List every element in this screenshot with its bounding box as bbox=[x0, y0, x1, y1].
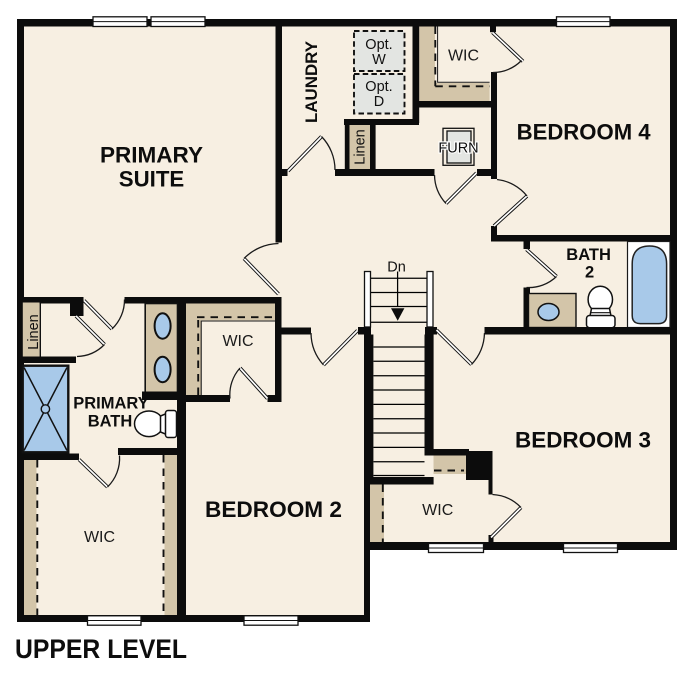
svg-text:BATH: BATH bbox=[88, 413, 133, 431]
svg-text:WIC: WIC bbox=[422, 502, 453, 519]
svg-text:FURN: FURN bbox=[438, 140, 478, 156]
svg-text:W: W bbox=[372, 52, 386, 68]
svg-text:Opt.: Opt. bbox=[365, 79, 392, 95]
svg-text:SUITE: SUITE bbox=[119, 167, 185, 192]
svg-text:Opt.: Opt. bbox=[365, 37, 392, 53]
svg-text:BEDROOM 4: BEDROOM 4 bbox=[517, 120, 651, 145]
svg-text:PRIMARY: PRIMARY bbox=[100, 143, 203, 168]
svg-text:WIC: WIC bbox=[84, 529, 115, 546]
svg-text:UPPER LEVEL: UPPER LEVEL bbox=[15, 634, 187, 664]
svg-text:D: D bbox=[374, 94, 384, 110]
svg-text:WIC: WIC bbox=[222, 333, 253, 350]
svg-text:BATH: BATH bbox=[566, 246, 611, 264]
svg-text:Linen: Linen bbox=[26, 314, 42, 349]
svg-text:Linen: Linen bbox=[353, 129, 369, 164]
svg-text:BEDROOM 2: BEDROOM 2 bbox=[205, 497, 342, 522]
svg-text:BEDROOM 3: BEDROOM 3 bbox=[515, 428, 651, 453]
svg-text:WIC: WIC bbox=[448, 48, 479, 65]
svg-text:Dn: Dn bbox=[387, 260, 406, 276]
svg-text:LAUNDRY: LAUNDRY bbox=[302, 40, 321, 123]
svg-text:2: 2 bbox=[585, 264, 594, 282]
svg-text:PRIMARY: PRIMARY bbox=[73, 395, 148, 413]
